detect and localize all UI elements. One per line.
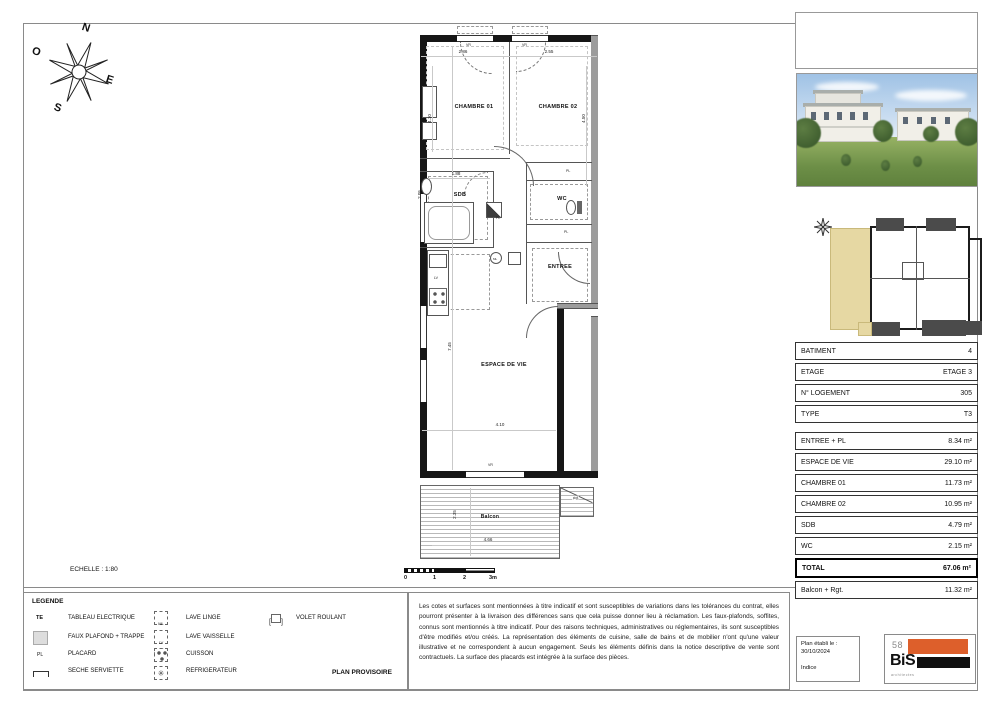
dim-line [428, 178, 490, 179]
legend-label: REFRIGERATEUR [186, 668, 237, 674]
partition [509, 42, 510, 154]
plan-info-box: Plan établi le : 30/10/2024 Indice [796, 636, 860, 682]
row-value: 2.15 m² [948, 543, 972, 550]
washing-machine-label: ML [493, 257, 497, 261]
dim-line [586, 66, 587, 186]
highlighted-balcony [858, 322, 872, 336]
table-row: CHAMBRE 0111.73 m² [795, 474, 978, 492]
disclaimer-box: Les cotes et surfaces sont mentionnées à… [408, 592, 790, 690]
dim-label: 1.88 [442, 171, 470, 176]
row-value: 305 [960, 390, 972, 397]
table-row: ETAGEETAGE 3 [795, 363, 978, 381]
vr-label: VR [488, 463, 493, 467]
photo-window [837, 112, 842, 120]
row-label: ENTREE + PL [801, 438, 846, 445]
photo-window [917, 117, 922, 124]
architect-logo-box: 58 BiS architectes [884, 634, 976, 684]
scale-segment [435, 568, 465, 573]
partition [526, 244, 527, 304]
legend-label: SECHE SERVIETTE [68, 668, 124, 674]
legend-label: CUISSON [186, 651, 213, 657]
vr-label: VR [466, 43, 471, 47]
appliance [508, 252, 521, 265]
balcony-block [926, 218, 956, 231]
party-wall [591, 316, 598, 478]
ml-symbol: ML [158, 621, 164, 626]
dim-label: 4.50 [581, 114, 586, 123]
photo-cloud [895, 90, 967, 101]
site-key-plan [806, 190, 980, 344]
false-ceiling-zone [426, 46, 504, 150]
window [457, 35, 493, 42]
legend-box: LEGENDE TE TABLEAU ELECTRIQUE FAUX PLAFO… [23, 592, 408, 690]
row-value: 11.32 m² [945, 587, 972, 594]
row-label: N° LOGEMENT [801, 390, 850, 397]
dim-label: 4.66 [468, 537, 508, 542]
window [512, 35, 548, 42]
room-label-chambre02: CHAMBRE 02 [522, 104, 594, 110]
photo-window [824, 112, 829, 120]
legend-label: TABLEAU ELECTRIQUE [68, 615, 135, 621]
row-value: 29.10 m² [944, 459, 972, 466]
plan-indice-label: Indice [801, 664, 855, 672]
balcony-block [922, 320, 966, 336]
dim-line [422, 430, 556, 431]
building-rendering-photo [796, 73, 978, 187]
scale-tick: 3m [489, 575, 497, 581]
partition [526, 162, 592, 163]
photo-tree [955, 118, 978, 146]
toilet [566, 200, 576, 215]
towel-dryer-icon [33, 671, 49, 677]
toilet-tank [577, 201, 582, 214]
room-label-chambre01: CHAMBRE 01 [434, 104, 514, 110]
dim-label: 2.86 [448, 49, 478, 54]
false-ceiling-icon [33, 631, 48, 645]
photo-sapling [913, 156, 922, 167]
legend-label: FAUX PLAFOND + TRAPPE [68, 634, 144, 640]
bathtub-inner [428, 206, 470, 240]
room-label-wc: WC [542, 196, 582, 202]
refrigerator-icon: ✳ [154, 666, 168, 680]
logo-bis: BiS [890, 652, 915, 670]
photo-window [903, 117, 908, 124]
row-value: 4 [968, 348, 972, 355]
pl-label: PL [566, 169, 570, 173]
door-swing [526, 306, 558, 338]
compass-west-label: O [30, 45, 42, 59]
building-outline-ext [968, 238, 982, 324]
party-wall [591, 35, 598, 309]
lv-symbol: LV [159, 640, 164, 645]
legend-title: LEGENDE [32, 598, 63, 605]
floor-plan: ML 2.86 2.55 4.10 4.50 1.88 2.05 7.45 4.… [408, 26, 608, 592]
dim-line [421, 56, 597, 57]
table-row: ENTREE + PL8.34 m² [795, 432, 978, 450]
room-label-sdb: SDB [438, 192, 482, 198]
table-row: BATIMENT4 [795, 342, 978, 360]
table-row: WC2.15 m² [795, 537, 978, 555]
compass-rose: N O E S [30, 22, 130, 122]
legend-label: LAVE LINGE [186, 615, 221, 621]
photo-window [945, 117, 950, 124]
furniture [422, 122, 437, 140]
partition [526, 242, 592, 243]
row-label: BATIMENT [801, 348, 836, 355]
dim-label: 4.10 [427, 114, 432, 123]
scale-label: ECHELLE : 1:80 [70, 566, 118, 573]
row-label: TOTAL [802, 565, 825, 572]
disclaimer-text: Les cotes et surfaces sont mentionnées à… [419, 602, 779, 664]
window [466, 471, 524, 478]
row-label: TYPE [801, 411, 819, 418]
scale-segment [404, 568, 435, 573]
row-label: CHAMBRE 01 [801, 480, 846, 487]
title-block-empty [795, 12, 978, 69]
compass-north-label: N [80, 21, 91, 35]
plan-date: 30/10/2024 [801, 648, 855, 656]
dishwasher-icon: LV [154, 630, 168, 644]
window [420, 360, 427, 402]
room-label-espace-de-vie: ESPACE DE VIE [456, 362, 552, 368]
logo-orange-bar [908, 639, 968, 654]
table-row: N° LOGEMENT305 [795, 384, 978, 402]
row-label: ESPACE DE VIE [801, 459, 854, 466]
photo-sapling [841, 154, 851, 166]
table-row-total: TOTAL67.06 m² [795, 558, 978, 578]
apartment-info-table: BATIMENT4 ETAGEETAGE 3 N° LOGEMENT305 TY… [795, 342, 978, 602]
te-symbol: TE [36, 615, 43, 621]
dim-label: 2.05 [417, 190, 422, 199]
photo-tree [923, 126, 939, 142]
pl-symbol: PL [37, 652, 43, 658]
row-value: T3 [964, 411, 972, 418]
balcony-block [876, 218, 904, 231]
roller-shutter-icon: [] [269, 614, 291, 624]
door-swing [494, 146, 534, 186]
washbasin [421, 178, 432, 195]
photo-window [931, 117, 936, 124]
row-value: ETAGE 3 [943, 369, 972, 376]
stair-core [902, 262, 924, 280]
roller-shutter-box [512, 26, 548, 34]
kitchen-sink [429, 254, 447, 268]
scale-tick: 0 [404, 575, 407, 581]
table-row: Balcon + Rgt.11.32 m² [795, 581, 978, 599]
partition [420, 247, 494, 248]
row-value: 11.73 m² [945, 480, 972, 487]
photo-tree [873, 120, 893, 142]
lv-label: LV [434, 276, 438, 280]
legend-label: LAVE VAISSELLE [186, 634, 234, 640]
logo-subtext: architectes [891, 673, 915, 677]
roller-shutter-box [457, 26, 493, 34]
photo-window [863, 112, 868, 120]
balcon-label: Balcon [460, 514, 520, 520]
table-row: TYPET3 [795, 405, 978, 423]
row-value: 4.79 m² [948, 522, 972, 529]
legend-label: PLACARD [68, 651, 96, 657]
scale-tick: 1 [433, 575, 436, 581]
plan-date-label: Plan établi le : [801, 640, 855, 648]
dim-label: 4.10 [480, 422, 520, 427]
pl-label: PL [564, 230, 568, 234]
cooktop-icon [154, 648, 168, 662]
dim-label: 2.35 [452, 510, 457, 519]
compass-south-label: S [52, 101, 63, 115]
window [420, 306, 427, 348]
row-label: CHAMBRE 02 [801, 501, 846, 508]
dim-line [432, 545, 540, 546]
scale-bar: 0 1 2 3m [404, 568, 504, 584]
logo-58: 58 [892, 640, 903, 650]
plan-provisoire-label: PLAN PROVISOIRE [332, 669, 392, 676]
washing-machine-icon: ML [154, 611, 168, 625]
legend-label: VOLET ROULANT [296, 615, 346, 621]
row-label: SDB [801, 522, 815, 529]
row-label: ETAGE [801, 369, 824, 376]
balcony-block [966, 321, 982, 335]
washing-machine: ML [490, 252, 502, 264]
compass-star-icon [37, 30, 120, 113]
drawing-sheet: N O E S [0, 0, 1000, 707]
partition [526, 224, 592, 225]
row-value: 8.34 m² [948, 438, 972, 445]
wall [557, 309, 564, 478]
pl-label: PL [496, 216, 500, 220]
dim-line [432, 66, 433, 152]
row-label: WC [801, 543, 813, 550]
scale-segment [465, 568, 495, 573]
spacer [801, 656, 855, 664]
photo-sapling [881, 160, 890, 171]
dim-label: 7.45 [447, 342, 452, 351]
row-label: Balcon + Rgt. [801, 587, 843, 594]
table-row: SDB4.79 m² [795, 516, 978, 534]
row-value: 67.06 m² [943, 565, 971, 572]
logo-black-bar [917, 657, 970, 668]
room-label-entree: ENTREE [530, 264, 590, 270]
wall [420, 35, 598, 42]
table-row: ESPACE DE VIE29.10 m² [795, 453, 978, 471]
cooktop [429, 288, 447, 306]
scale-tick: 2 [463, 575, 466, 581]
row-value: 10.95 m² [944, 501, 972, 508]
photo-window [850, 112, 855, 120]
table-row: CHAMBRE 0210.95 m² [795, 495, 978, 513]
partition [526, 180, 592, 181]
highlighted-unit [830, 228, 872, 330]
balcony [420, 485, 560, 559]
vr-label: VR [522, 43, 527, 47]
dim-label: 2.55 [534, 49, 564, 54]
